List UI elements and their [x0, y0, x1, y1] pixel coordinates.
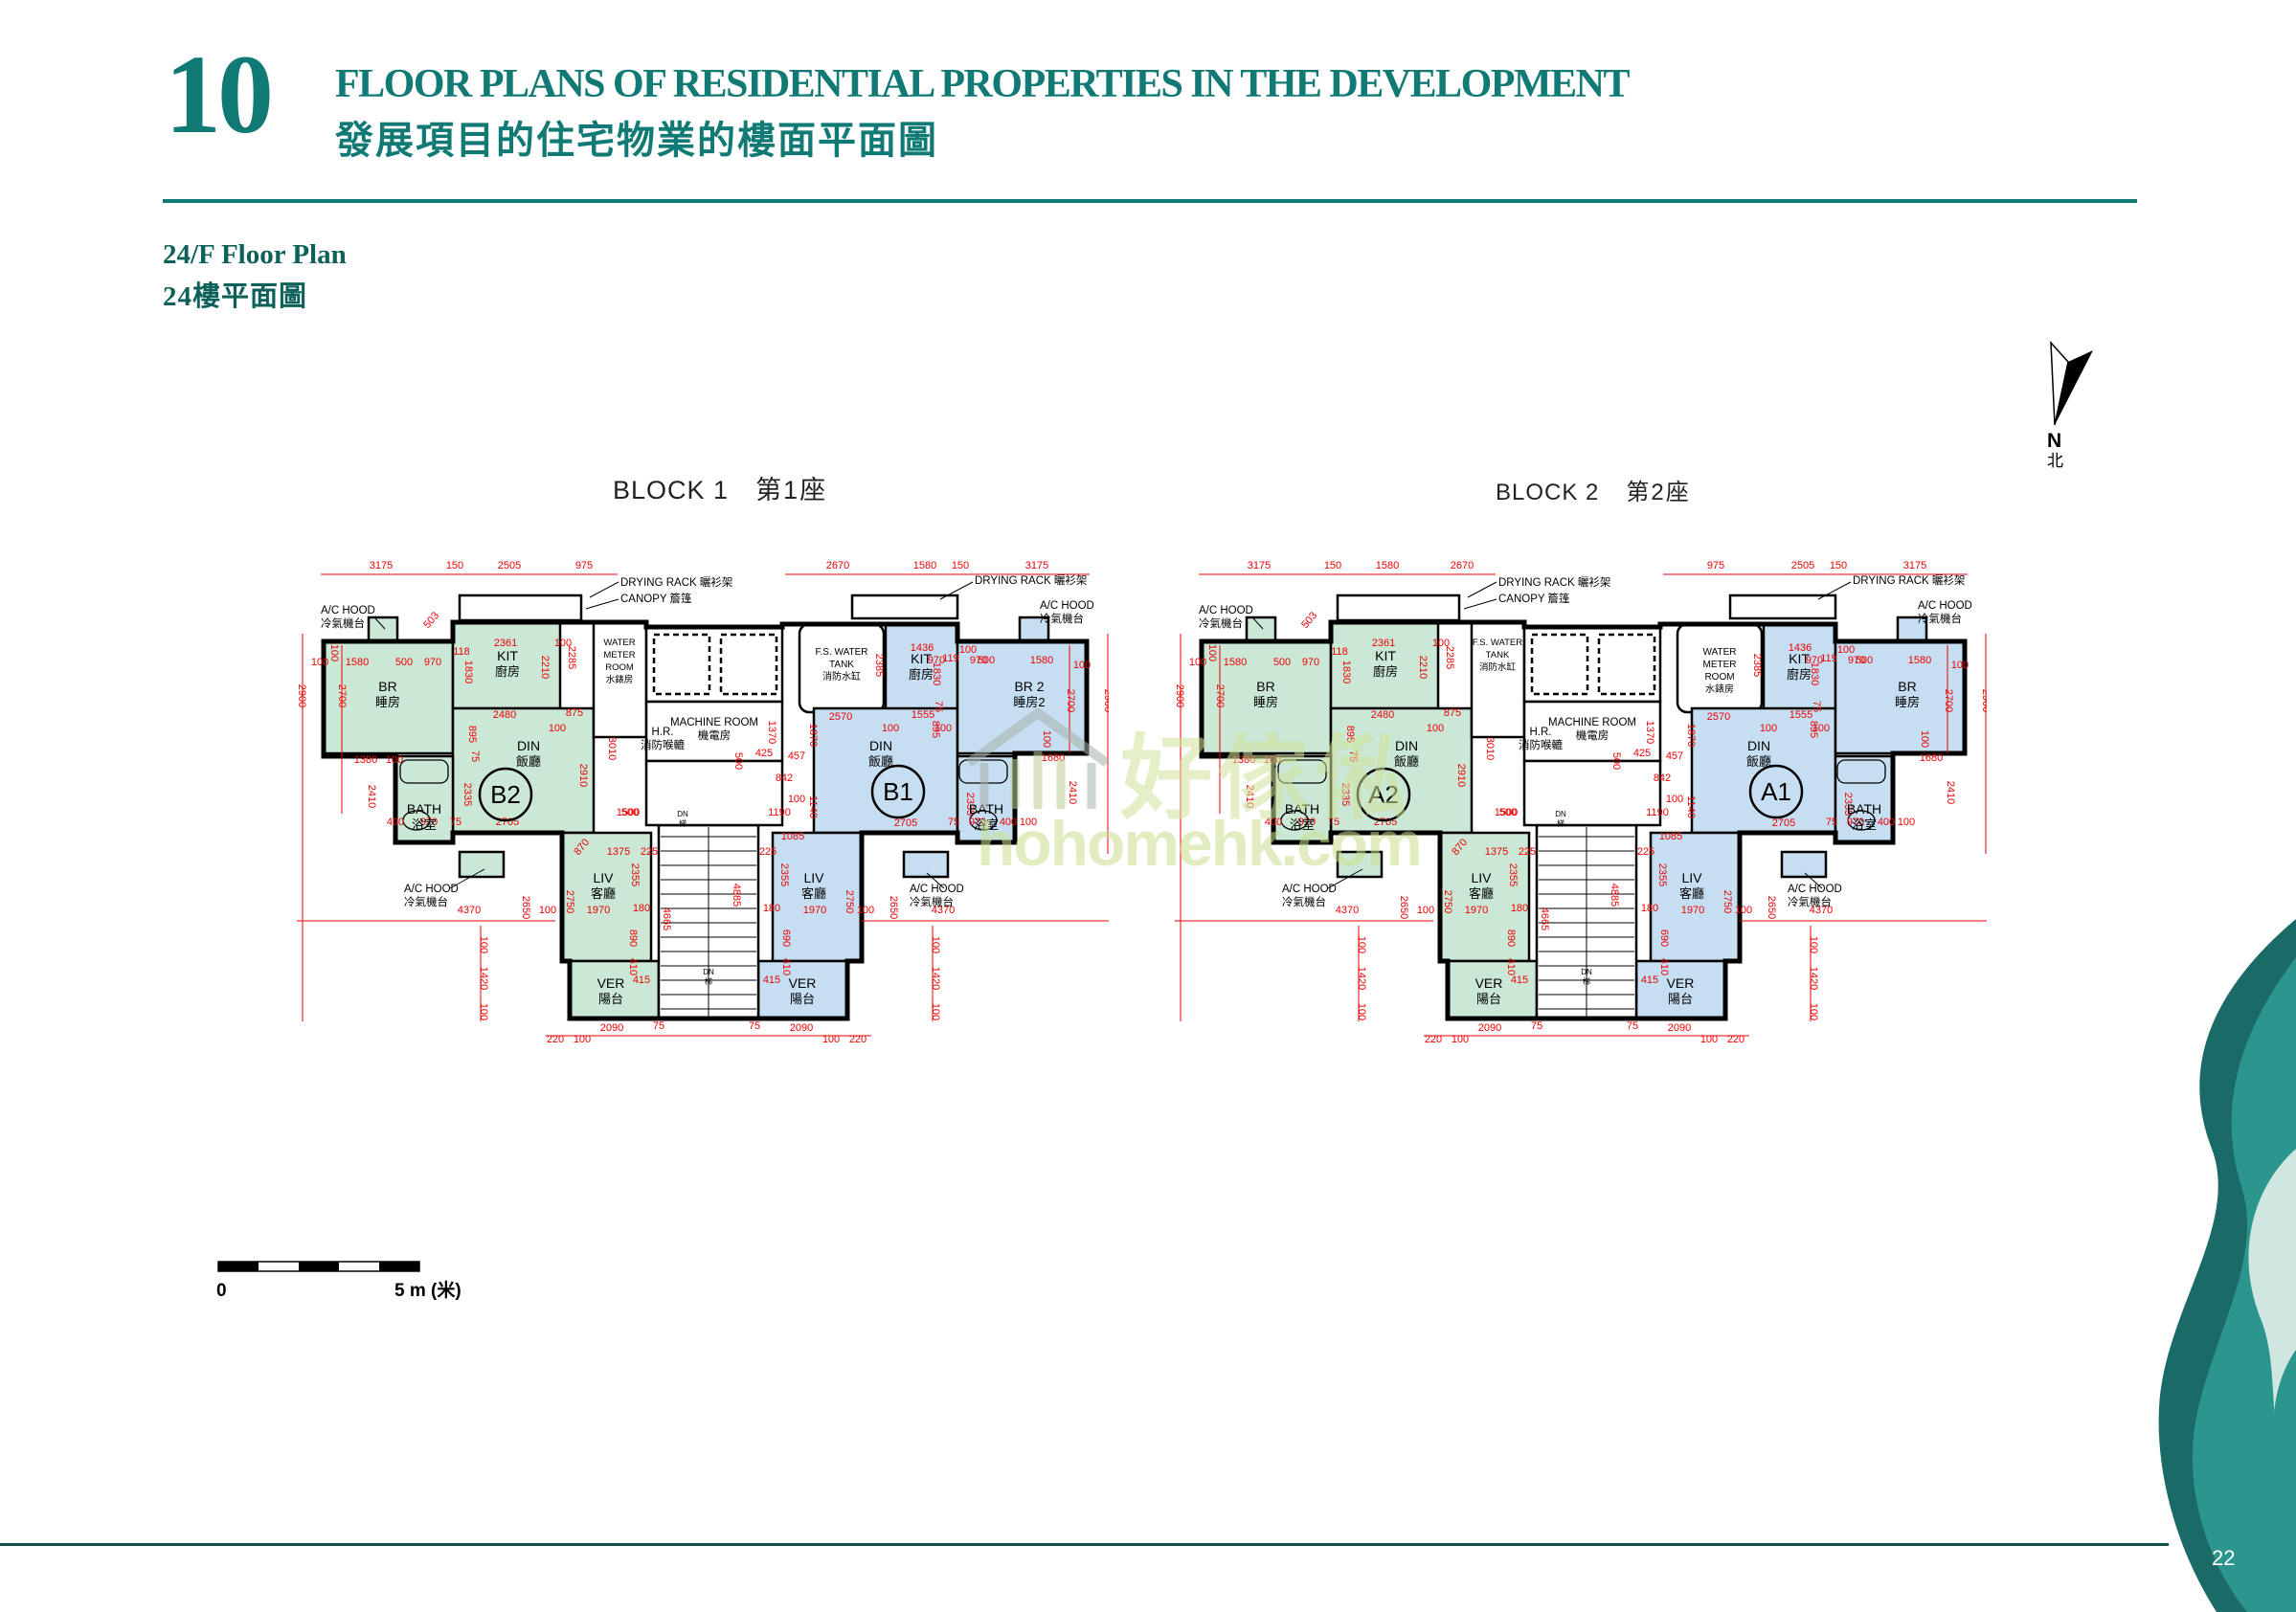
svg-text:890: 890: [1505, 929, 1517, 947]
svg-text:970: 970: [424, 657, 441, 668]
svg-text:2210: 2210: [1417, 656, 1429, 679]
svg-text:100: 100: [1041, 730, 1052, 748]
svg-text:DIN: DIN: [1747, 738, 1770, 753]
svg-text:睡房: 睡房: [1895, 695, 1920, 709]
svg-text:415: 415: [763, 974, 780, 986]
svg-text:DIN: DIN: [1395, 738, 1418, 753]
svg-text:2505: 2505: [1791, 560, 1814, 571]
block2-title-zh: 第2座: [1626, 480, 1690, 505]
svg-text:浴室: 浴室: [974, 817, 999, 832]
svg-text:飯廳: 飯廳: [1394, 754, 1419, 769]
svg-text:A/C HOOD: A/C HOOD: [910, 884, 964, 895]
svg-text:503: 503: [421, 610, 441, 631]
svg-text:梯: 梯: [705, 976, 712, 986]
svg-text:75: 75: [1347, 750, 1359, 762]
svg-text:WATER: WATER: [1703, 647, 1737, 658]
svg-text:2700: 2700: [1214, 684, 1226, 707]
svg-text:DRYING RACK 曬衫架: DRYING RACK 曬衫架: [975, 574, 1087, 587]
svg-text:75: 75: [933, 701, 944, 712]
svg-text:陽台: 陽台: [598, 992, 623, 1006]
svg-text:2090: 2090: [790, 1022, 813, 1034]
svg-text:220: 220: [1727, 1034, 1745, 1045]
svg-text:浴室: 浴室: [1852, 817, 1877, 832]
svg-text:梯: 梯: [1583, 976, 1590, 986]
svg-text:75: 75: [1328, 817, 1339, 828]
svg-text:2355: 2355: [1656, 863, 1668, 886]
svg-text:H.R.: H.R.: [1530, 727, 1552, 738]
corner-decoration: 22: [1996, 900, 2296, 1612]
svg-text:100: 100: [478, 1003, 489, 1020]
brochure-page: 10 FLOOR PLANS OF RESIDENTIAL PROPERTIES…: [0, 0, 2296, 1612]
svg-text:BR: BR: [378, 679, 396, 694]
svg-text:浴室: 浴室: [1290, 817, 1315, 832]
svg-text:陽台: 陽台: [790, 992, 815, 1006]
scale-bar: 0 5 m (米): [216, 1256, 494, 1302]
svg-text:2910: 2910: [577, 764, 589, 787]
svg-text:890: 890: [627, 929, 639, 947]
svg-text:1830: 1830: [1340, 660, 1352, 683]
svg-text:冷氣機台: 冷氣機台: [1040, 612, 1084, 625]
svg-text:1380: 1380: [354, 754, 377, 766]
header-rule: [163, 199, 2137, 203]
svg-text:100: 100: [328, 644, 340, 661]
svg-text:100: 100: [1417, 905, 1434, 916]
svg-text:4665: 4665: [1539, 907, 1550, 930]
svg-text:100: 100: [1452, 1034, 1469, 1045]
svg-text:2650: 2650: [1766, 896, 1777, 919]
svg-text:100: 100: [1808, 1003, 1819, 1020]
svg-text:180: 180: [763, 903, 780, 914]
svg-text:機電房: 機電房: [1576, 728, 1609, 742]
svg-text:875: 875: [566, 707, 583, 719]
svg-text:1555: 1555: [1790, 709, 1812, 721]
svg-text:1870: 1870: [1685, 724, 1697, 747]
svg-text:75: 75: [948, 817, 959, 828]
svg-text:3010: 3010: [606, 737, 618, 760]
svg-text:LIV: LIV: [593, 870, 614, 885]
svg-text:1580: 1580: [913, 560, 936, 571]
svg-text:F.S. WATER: F.S. WATER: [816, 647, 868, 658]
section-number: 10: [165, 38, 270, 151]
svg-text:500: 500: [732, 752, 744, 770]
svg-text:1140: 1140: [807, 795, 819, 818]
svg-text:F.S. WATER: F.S. WATER: [1473, 638, 1522, 648]
svg-text:1420: 1420: [1356, 967, 1367, 990]
svg-text:180: 180: [633, 903, 650, 914]
svg-text:DRYING RACK 曬衫架: DRYING RACK 曬衫架: [620, 576, 732, 589]
svg-text:A2: A2: [1368, 780, 1399, 809]
svg-text:1580: 1580: [1908, 655, 1931, 666]
svg-text:2705: 2705: [894, 817, 917, 829]
svg-text:118: 118: [1331, 646, 1348, 658]
svg-text:1420: 1420: [930, 967, 941, 990]
svg-text:DIN: DIN: [869, 738, 892, 753]
svg-text:2900: 2900: [1174, 684, 1185, 707]
svg-text:100: 100: [1356, 1003, 1367, 1020]
svg-text:75: 75: [653, 1020, 664, 1032]
svg-text:水錶房: 水錶房: [606, 674, 634, 685]
svg-text:2410: 2410: [1945, 781, 1956, 804]
svg-text:睡房: 睡房: [375, 695, 400, 709]
page-title-en: FLOOR PLANS OF RESIDENTIAL PROPERTIES IN…: [335, 61, 1629, 107]
svg-text:875: 875: [1444, 707, 1461, 719]
svg-text:廚房: 廚房: [495, 664, 520, 679]
svg-text:2700: 2700: [336, 684, 348, 707]
svg-text:75: 75: [469, 750, 481, 762]
svg-text:BATH: BATH: [1847, 801, 1881, 817]
svg-text:220: 220: [547, 1034, 564, 1045]
svg-text:100: 100: [1073, 660, 1091, 671]
svg-text:4370: 4370: [458, 905, 481, 916]
svg-text:ROOM: ROOM: [1704, 672, 1734, 683]
svg-text:100: 100: [574, 1034, 591, 1045]
svg-text:75: 75: [1811, 701, 1822, 712]
svg-text:975: 975: [1707, 560, 1724, 571]
svg-text:100: 100: [1189, 657, 1206, 668]
svg-text:500: 500: [978, 655, 995, 666]
svg-text:1380: 1380: [1232, 754, 1255, 766]
svg-text:A/C HOOD: A/C HOOD: [1040, 600, 1094, 612]
svg-text:415: 415: [633, 974, 650, 986]
svg-text:500: 500: [621, 807, 639, 818]
svg-text:H.R.: H.R.: [652, 727, 674, 738]
svg-text:KIT: KIT: [1375, 648, 1396, 663]
svg-text:2570: 2570: [1707, 711, 1730, 723]
svg-text:500: 500: [395, 657, 413, 668]
svg-text:BATH: BATH: [1285, 801, 1319, 817]
svg-text:415: 415: [1511, 974, 1528, 986]
svg-text:100: 100: [1735, 905, 1752, 916]
svg-text:BATH: BATH: [407, 801, 441, 817]
svg-text:2670: 2670: [826, 560, 849, 571]
svg-text:3175: 3175: [370, 560, 393, 571]
block1-floor-plan: 3175150250597526701580150317515805009701…: [285, 538, 1109, 1088]
svg-text:1190: 1190: [768, 807, 791, 818]
svg-text:METER: METER: [603, 650, 635, 660]
svg-text:500: 500: [1610, 752, 1622, 770]
svg-text:陽台: 陽台: [1476, 992, 1501, 1006]
svg-text:消防喉轆: 消防喉轆: [1519, 738, 1563, 751]
svg-text:100: 100: [882, 723, 899, 734]
svg-text:3010: 3010: [1484, 737, 1496, 760]
svg-text:廚房: 廚房: [1787, 667, 1812, 682]
svg-text:1680: 1680: [1042, 752, 1065, 764]
svg-text:3175: 3175: [1248, 560, 1271, 571]
svg-text:100: 100: [1898, 817, 1915, 828]
svg-text:DRYING RACK 曬衫架: DRYING RACK 曬衫架: [1853, 574, 1965, 587]
svg-text:2090: 2090: [1668, 1022, 1691, 1034]
svg-text:睡房: 睡房: [1253, 695, 1278, 709]
svg-text:75: 75: [450, 817, 461, 828]
svg-text:1085: 1085: [781, 831, 804, 842]
svg-text:2385: 2385: [1751, 654, 1763, 677]
svg-text:DN: DN: [1581, 968, 1592, 976]
svg-text:VER: VER: [789, 975, 817, 991]
svg-text:1580: 1580: [1376, 560, 1399, 571]
svg-text:500: 500: [1856, 655, 1873, 666]
svg-text:梯: 梯: [1557, 818, 1564, 828]
svg-text:LIV: LIV: [1471, 870, 1492, 885]
svg-text:BATH: BATH: [969, 801, 1003, 817]
svg-text:機電房: 機電房: [698, 728, 732, 742]
block2-title: BLOCK 2第2座: [1496, 473, 1691, 506]
svg-text:1580: 1580: [1030, 655, 1053, 666]
svg-text:1375: 1375: [1485, 846, 1508, 858]
svg-text:1420: 1420: [1808, 967, 1819, 990]
north-label-zh: 北: [2047, 452, 2063, 470]
svg-text:100: 100: [549, 723, 566, 734]
svg-text:410: 410: [627, 958, 639, 975]
svg-text:1190: 1190: [1646, 807, 1669, 818]
svg-text:CANOPY 簷篷: CANOPY 簷篷: [1498, 592, 1570, 605]
svg-text:2355: 2355: [1507, 863, 1519, 886]
svg-text:2335: 2335: [461, 783, 473, 806]
svg-text:2480: 2480: [1371, 709, 1394, 721]
svg-text:150: 150: [952, 560, 969, 571]
svg-text:KIT: KIT: [911, 651, 932, 666]
svg-text:METER: METER: [1703, 660, 1737, 670]
svg-text:VER: VER: [1667, 975, 1695, 991]
svg-text:A/C HOOD: A/C HOOD: [1918, 600, 1972, 612]
svg-text:2505: 2505: [498, 560, 521, 571]
svg-text:睡房2: 睡房2: [1013, 695, 1045, 709]
svg-text:消防水缸: 消防水缸: [822, 670, 861, 683]
svg-text:1580: 1580: [346, 657, 369, 668]
svg-text:A/C HOOD: A/C HOOD: [1282, 884, 1337, 895]
svg-text:廚房: 廚房: [909, 667, 934, 682]
svg-text:895: 895: [1344, 726, 1356, 743]
svg-text:MACHINE ROOM: MACHINE ROOM: [670, 717, 758, 728]
svg-text:970: 970: [1302, 657, 1319, 668]
svg-text:410: 410: [780, 958, 792, 975]
svg-text:1085: 1085: [1659, 831, 1682, 842]
svg-text:B2: B2: [490, 780, 521, 809]
svg-text:飯廳: 飯廳: [516, 754, 541, 769]
svg-text:KIT: KIT: [497, 648, 518, 663]
svg-text:冷氣機台: 冷氣機台: [321, 616, 365, 630]
floor-subtitle-zh: 24樓平面圖: [163, 274, 307, 314]
svg-text:895: 895: [466, 726, 478, 743]
svg-text:2650: 2650: [888, 896, 899, 919]
svg-text:842: 842: [1654, 772, 1671, 784]
svg-text:75: 75: [1627, 1020, 1638, 1032]
block2-floor-plan: 3175150158026709752505150317515805009701…: [1163, 538, 1987, 1088]
svg-text:100: 100: [930, 936, 941, 953]
svg-text:150: 150: [1830, 560, 1847, 571]
svg-text:1870: 1870: [807, 724, 819, 747]
svg-text:690: 690: [1658, 929, 1670, 947]
svg-text:LIV: LIV: [1681, 870, 1702, 885]
svg-text:DN: DN: [677, 810, 688, 818]
svg-text:100: 100: [1919, 730, 1930, 748]
svg-text:400: 400: [387, 817, 404, 828]
svg-text:消防喉轆: 消防喉轆: [641, 738, 685, 751]
svg-text:3175: 3175: [1025, 560, 1048, 571]
svg-text:2355: 2355: [629, 863, 641, 886]
svg-text:4885: 4885: [1609, 884, 1620, 907]
svg-text:400: 400: [1265, 817, 1282, 828]
svg-text:457: 457: [788, 750, 805, 762]
svg-text:LIV: LIV: [803, 870, 824, 885]
svg-text:150: 150: [446, 560, 463, 571]
svg-text:冷氣機台: 冷氣機台: [1918, 612, 1962, 625]
svg-text:VER: VER: [597, 975, 625, 991]
svg-text:100: 100: [1808, 936, 1819, 953]
svg-text:100: 100: [1666, 794, 1683, 805]
svg-text:4885: 4885: [731, 884, 742, 907]
svg-text:75: 75: [1531, 1020, 1542, 1032]
svg-text:TANK: TANK: [1486, 650, 1510, 660]
svg-text:2750: 2750: [1442, 890, 1453, 913]
svg-text:225: 225: [759, 846, 777, 858]
svg-text:2900: 2900: [1102, 689, 1109, 712]
svg-text:180: 180: [1641, 903, 1658, 914]
svg-text:A/C HOOD: A/C HOOD: [404, 884, 459, 895]
svg-text:2670: 2670: [1451, 560, 1474, 571]
block1-title-zh: 第1座: [755, 476, 827, 504]
svg-text:225: 225: [1637, 846, 1654, 858]
svg-text:895: 895: [1808, 721, 1819, 738]
svg-text:BR 2: BR 2: [1014, 679, 1044, 694]
svg-text:DIN: DIN: [517, 738, 540, 753]
svg-text:A1: A1: [1761, 777, 1791, 806]
svg-text:2410: 2410: [1067, 781, 1078, 804]
svg-text:陽台: 陽台: [1668, 992, 1693, 1006]
block2-title-en: BLOCK 2: [1496, 480, 1599, 505]
svg-text:BR: BR: [1898, 679, 1916, 694]
svg-text:100: 100: [1264, 754, 1281, 766]
svg-text:1420: 1420: [478, 967, 489, 990]
svg-text:冷氣機台: 冷氣機台: [1282, 895, 1326, 908]
page-number: 22: [2212, 1546, 2235, 1570]
svg-text:4370: 4370: [1336, 905, 1359, 916]
svg-text:400: 400: [1878, 817, 1895, 828]
svg-text:KIT: KIT: [1789, 651, 1810, 666]
floor-subtitle-en: 24/F Floor Plan: [163, 239, 347, 271]
svg-text:2700: 2700: [1065, 689, 1076, 712]
svg-text:ROOM: ROOM: [605, 662, 634, 673]
svg-text:1140: 1140: [1685, 795, 1697, 818]
svg-text:842: 842: [776, 772, 793, 784]
svg-text:2900: 2900: [1980, 689, 1987, 712]
block1-title-en: BLOCK 1: [613, 476, 729, 504]
svg-text:1970: 1970: [587, 905, 610, 916]
svg-text:100: 100: [386, 754, 403, 766]
svg-text:2750: 2750: [564, 890, 575, 913]
svg-text:客廳: 客廳: [1469, 886, 1494, 901]
svg-text:MACHINE ROOM: MACHINE ROOM: [1548, 717, 1636, 728]
svg-text:100: 100: [539, 905, 556, 916]
svg-text:1555: 1555: [912, 709, 934, 721]
svg-text:2910: 2910: [1455, 764, 1467, 787]
svg-text:400: 400: [1000, 817, 1017, 828]
svg-text:2410: 2410: [366, 785, 377, 808]
svg-text:150: 150: [1324, 560, 1341, 571]
svg-text:180: 180: [1511, 903, 1528, 914]
svg-text:1370: 1370: [1644, 721, 1655, 744]
svg-text:2650: 2650: [520, 896, 531, 919]
svg-text:2700: 2700: [1943, 689, 1954, 712]
scale-zero-label: 0: [216, 1281, 227, 1301]
svg-text:100: 100: [1427, 723, 1444, 734]
north-arrow: N 北: [2035, 337, 2111, 471]
svg-text:A/C HOOD: A/C HOOD: [1199, 605, 1253, 616]
svg-text:客廳: 客廳: [801, 886, 826, 901]
svg-text:梯: 梯: [679, 818, 687, 828]
svg-text:DN: DN: [1555, 810, 1566, 818]
svg-text:2705: 2705: [1772, 817, 1795, 829]
svg-text:500: 500: [1499, 807, 1517, 818]
svg-text:TANK: TANK: [829, 660, 854, 670]
svg-text:WATER: WATER: [603, 638, 635, 648]
svg-text:225: 225: [641, 846, 658, 858]
svg-text:75: 75: [749, 1020, 760, 1032]
svg-text:425: 425: [1633, 748, 1651, 759]
footer-rule: [0, 1543, 2169, 1546]
svg-text:2090: 2090: [600, 1022, 623, 1034]
svg-text:客廳: 客廳: [591, 886, 616, 901]
svg-text:BR: BR: [1256, 679, 1274, 694]
svg-text:100: 100: [930, 1003, 941, 1020]
svg-text:2285: 2285: [566, 646, 577, 669]
svg-text:100: 100: [788, 794, 805, 805]
svg-text:410: 410: [1505, 958, 1517, 975]
svg-text:2385: 2385: [873, 654, 885, 677]
svg-text:2900: 2900: [296, 684, 307, 707]
svg-text:1375: 1375: [607, 846, 630, 858]
svg-text:冷氣機台: 冷氣機台: [404, 895, 448, 908]
svg-text:225: 225: [1519, 846, 1536, 858]
svg-text:425: 425: [755, 748, 773, 759]
svg-text:690: 690: [780, 929, 792, 947]
svg-text:DRYING RACK 曬衫架: DRYING RACK 曬衫架: [1498, 576, 1610, 589]
svg-text:457: 457: [1666, 750, 1683, 762]
svg-text:冷氣機台: 冷氣機台: [1199, 616, 1243, 630]
svg-text:浴室: 浴室: [412, 817, 437, 832]
svg-text:100: 100: [311, 657, 328, 668]
svg-text:客廳: 客廳: [1679, 886, 1704, 901]
svg-text:1970: 1970: [1465, 905, 1488, 916]
svg-text:1970: 1970: [1681, 905, 1704, 916]
svg-text:冷氣機台: 冷氣機台: [910, 895, 954, 908]
svg-text:2750: 2750: [844, 890, 855, 913]
north-label-n: N: [2047, 430, 2061, 452]
svg-text:1680: 1680: [1920, 752, 1943, 764]
svg-text:3175: 3175: [1903, 560, 1926, 571]
svg-text:503: 503: [1299, 610, 1319, 631]
svg-text:220: 220: [1425, 1034, 1442, 1045]
svg-text:975: 975: [575, 560, 593, 571]
svg-text:VER: VER: [1475, 975, 1503, 991]
scale-max-label: 5 m (米): [394, 1279, 461, 1301]
page-title-zh: 發展項目的住宅物業的樓面平面圖: [335, 109, 938, 165]
svg-text:118: 118: [453, 646, 470, 658]
svg-text:100: 100: [1206, 644, 1218, 661]
svg-text:100: 100: [1760, 723, 1777, 734]
svg-text:415: 415: [1641, 974, 1658, 986]
svg-text:100: 100: [1356, 936, 1367, 953]
svg-text:冷氣機台: 冷氣機台: [1788, 895, 1832, 908]
svg-text:2650: 2650: [1398, 896, 1409, 919]
svg-text:100: 100: [1700, 1034, 1718, 1045]
svg-text:DN: DN: [703, 968, 714, 976]
svg-text:A/C HOOD: A/C HOOD: [321, 605, 375, 616]
svg-text:B1: B1: [883, 777, 913, 806]
svg-text:410: 410: [1658, 958, 1670, 975]
svg-text:75: 75: [1826, 817, 1837, 828]
svg-text:4665: 4665: [661, 907, 672, 930]
svg-text:A/C HOOD: A/C HOOD: [1788, 884, 1842, 895]
